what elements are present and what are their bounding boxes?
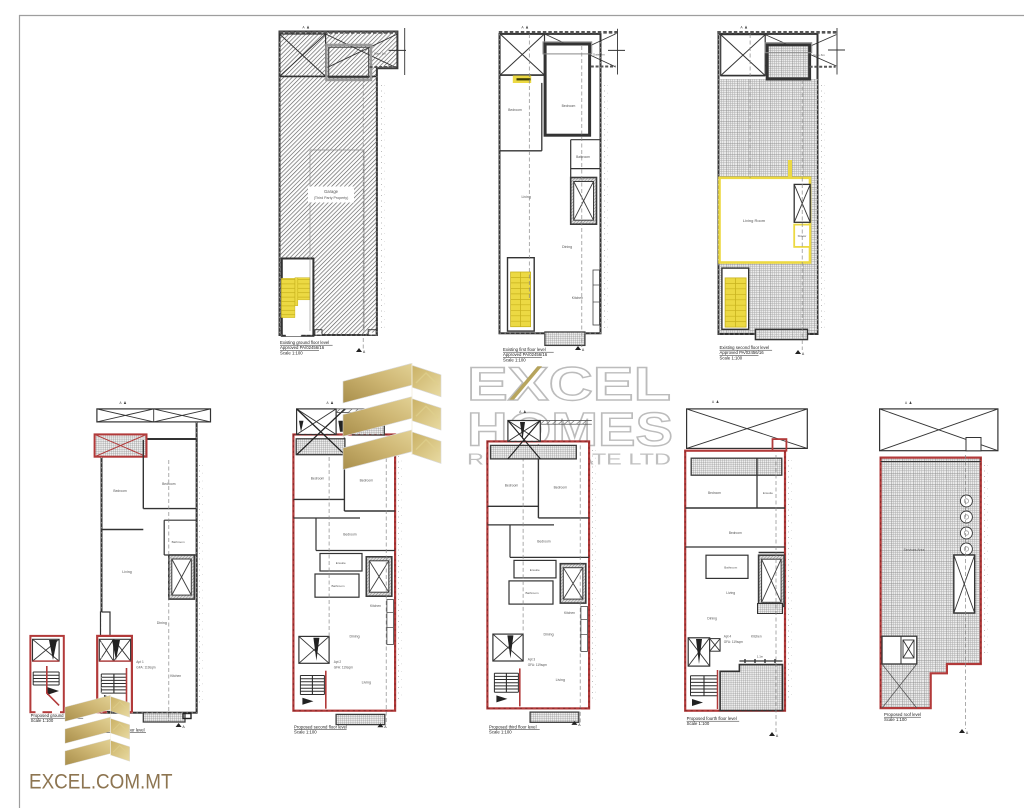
svg-text:Bedroom: Bedroom: [554, 485, 568, 489]
svg-text:Ensuite: Ensuite: [763, 491, 773, 495]
svg-text:Bedroom: Bedroom: [562, 104, 576, 108]
svg-text:Dining: Dining: [707, 617, 717, 621]
svg-text:Apt 4: Apt 4: [724, 635, 732, 639]
svg-text:GFA: 119sqm: GFA: 119sqm: [724, 640, 744, 644]
svg-text:Ensuite: Ensuite: [336, 561, 346, 565]
svg-text:Scale 1:100: Scale 1:100: [503, 357, 526, 362]
svg-text:Apt 1: Apt 1: [136, 660, 144, 664]
svg-text:Living: Living: [726, 591, 735, 595]
svg-text:Apt 3: Apt 3: [528, 658, 536, 662]
svg-text:Living: Living: [362, 681, 371, 685]
svg-text:Bathroom: Bathroom: [576, 155, 590, 159]
svg-text:Gate 3m: Gate 3m: [593, 53, 605, 57]
svg-text:GFA: 119sqm: GFA: 119sqm: [136, 666, 156, 670]
svg-text:Scale 1:100: Scale 1:100: [884, 717, 907, 722]
svg-text:Kitchen: Kitchen: [751, 635, 762, 639]
svg-text:Dining: Dining: [543, 632, 553, 636]
svg-text:1.1m: 1.1m: [757, 655, 764, 659]
svg-text:GFA: 119sqm: GFA: 119sqm: [528, 663, 548, 667]
svg-text:(Third Party Property): (Third Party Property): [314, 196, 349, 200]
svg-text:Ensuite: Ensuite: [530, 568, 540, 572]
svg-text:Services Area: Services Area: [904, 548, 925, 552]
svg-text:Dining: Dining: [157, 621, 167, 625]
svg-text:Living: Living: [556, 678, 565, 682]
svg-text:Garage: Garage: [324, 189, 339, 194]
svg-text:Bathroom: Bathroom: [525, 591, 539, 595]
svg-text:Bedroom: Bedroom: [729, 531, 742, 535]
svg-text:Scale 1:100: Scale 1:100: [720, 355, 743, 360]
svg-text:Scale 1:100: Scale 1:100: [280, 350, 303, 355]
svg-text:Bathroom: Bathroom: [172, 540, 186, 544]
svg-text:Bedroom: Bedroom: [537, 539, 551, 543]
svg-text:Bedroom: Bedroom: [508, 108, 522, 112]
svg-text:Bedroom: Bedroom: [505, 483, 519, 487]
svg-text:Living Room: Living Room: [743, 218, 766, 223]
svg-text:GFA: 119sqm: GFA: 119sqm: [334, 666, 354, 670]
svg-text:Bedroom: Bedroom: [360, 479, 374, 483]
svg-text:Scale 1:100: Scale 1:100: [31, 718, 54, 723]
svg-text:Apt 2: Apt 2: [334, 660, 342, 664]
svg-text:Gate 3m: Gate 3m: [374, 52, 386, 56]
svg-text:Dining: Dining: [349, 635, 359, 639]
svg-text:Bedroom: Bedroom: [343, 533, 357, 537]
svg-text:Gate 3m: Gate 3m: [813, 53, 825, 57]
svg-text:Bedroom: Bedroom: [708, 491, 721, 495]
svg-text:Bathroom: Bathroom: [724, 566, 738, 570]
svg-text:Scale 1:100: Scale 1:100: [294, 730, 317, 735]
svg-text:Bedroom: Bedroom: [311, 477, 325, 481]
svg-text:Living: Living: [122, 570, 131, 574]
svg-text:Scale 1:100: Scale 1:100: [687, 721, 710, 726]
svg-text:Kitchen: Kitchen: [170, 674, 181, 678]
svg-text:Kitchen: Kitchen: [564, 611, 575, 615]
svg-text:Scale 1:100: Scale 1:100: [489, 730, 512, 735]
svg-text:Bedroom: Bedroom: [113, 489, 127, 493]
svg-text:Dining: Dining: [562, 245, 572, 249]
svg-text:EXCEL.COM.MT: EXCEL.COM.MT: [29, 771, 173, 794]
svg-text:Bathroom: Bathroom: [331, 584, 345, 588]
svg-text:Kitchen: Kitchen: [370, 604, 381, 608]
